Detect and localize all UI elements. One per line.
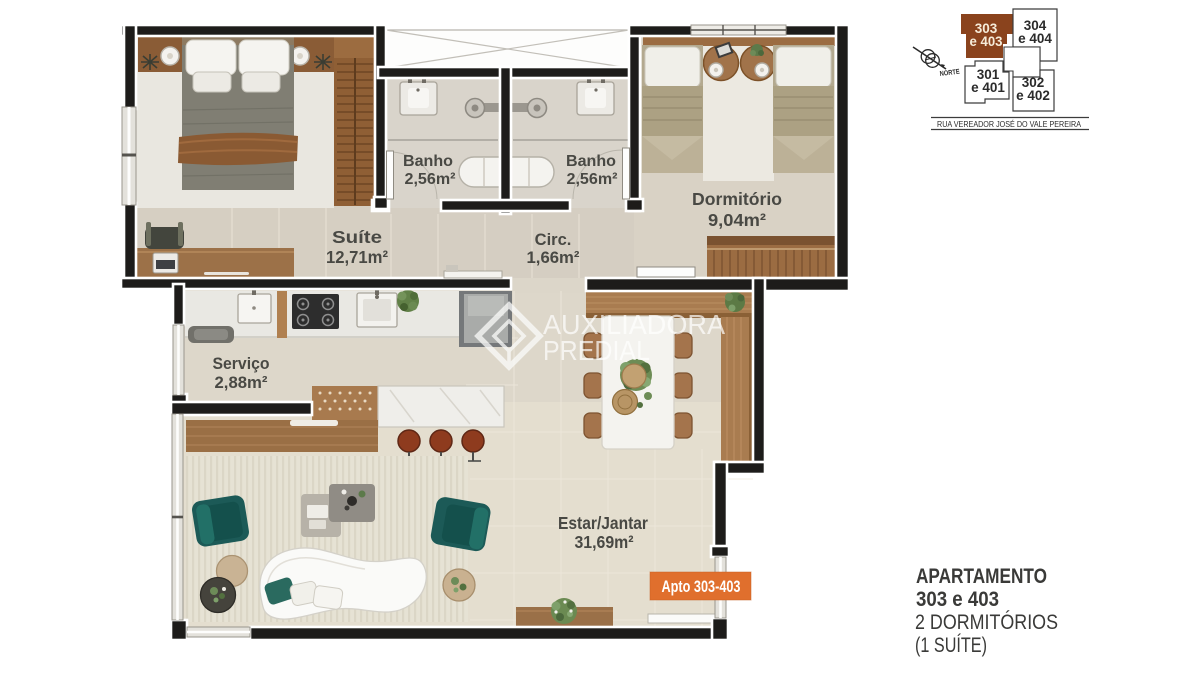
svg-text:Banho: Banho [566,153,616,170]
svg-text:Circ.: Circ. [535,231,572,249]
svg-text:e 403: e 403 [970,34,1003,49]
svg-text:APARTAMENTO: APARTAMENTO [916,564,1047,588]
svg-text:303 e 403: 303 e 403 [916,587,999,611]
svg-text:2 DORMITÓRIOS: 2 DORMITÓRIOS [915,609,1058,634]
svg-text:31,69m²: 31,69m² [575,532,634,552]
svg-text:e 404: e 404 [1018,31,1052,46]
svg-text:2,56m²: 2,56m² [567,171,618,188]
svg-text:Serviço: Serviço [213,355,270,373]
svg-text:Estar/Jantar: Estar/Jantar [558,513,648,533]
svg-text:e 402: e 402 [1016,88,1050,103]
svg-text:1,66m²: 1,66m² [527,249,581,267]
svg-text:9,04m²: 9,04m² [708,210,766,230]
svg-text:2,88m²: 2,88m² [215,374,269,392]
svg-text:PREDIAL: PREDIAL [543,335,650,366]
svg-text:e 401: e 401 [971,80,1005,95]
svg-text:2,56m²: 2,56m² [405,171,456,188]
svg-text:Dormitório: Dormitório [692,189,782,209]
svg-text:Banho: Banho [403,153,453,170]
svg-text:12,71m²: 12,71m² [326,247,388,267]
svg-text:Suíte: Suíte [332,227,382,247]
svg-text:(1 SUÍTE): (1 SUÍTE) [915,632,987,657]
svg-text:RUA VEREADOR JOSÉ DO VALE: RUA VEREADOR JOSÉ DO VALE PEREIRA [937,119,1081,129]
svg-text:Apto 303-403: Apto 303-403 [662,578,741,596]
